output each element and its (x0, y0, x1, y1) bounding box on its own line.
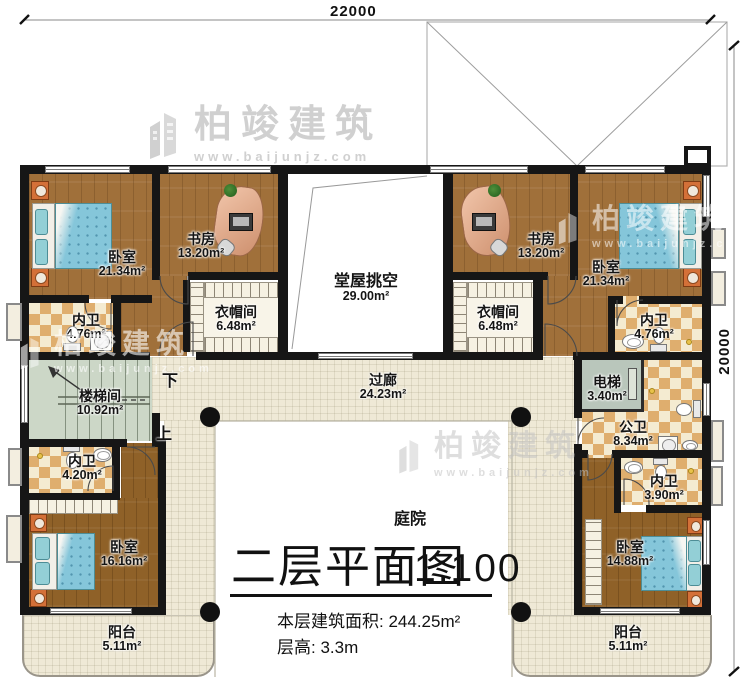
wall (570, 165, 578, 280)
nightstand (30, 514, 47, 532)
wall (196, 352, 278, 360)
wall (152, 272, 160, 280)
nightstand (30, 589, 47, 607)
pillow (683, 239, 696, 265)
wardrobe-hatch (204, 282, 279, 298)
bed-mattress (57, 533, 95, 590)
room-label-bedroom-top-left: 卧室21.34m² (99, 250, 146, 278)
pillow (35, 537, 50, 560)
dimension-top: 22000 (330, 3, 377, 20)
room-label-public-bath: 公卫8.34m² (613, 420, 653, 448)
wall (20, 439, 127, 447)
window (703, 175, 710, 217)
computer-monitor (229, 213, 253, 231)
window (585, 166, 665, 173)
window (703, 383, 710, 416)
room-label-bedroom-wing-left: 卧室16.16m² (101, 540, 148, 568)
wall (158, 439, 166, 615)
pillow (688, 540, 701, 562)
nightstand (31, 268, 49, 287)
wall (20, 295, 89, 303)
window (50, 608, 132, 614)
pillow (683, 209, 696, 235)
elevator-door (628, 368, 637, 400)
column (511, 602, 531, 622)
wall (615, 296, 623, 304)
wardrobe-hatch (467, 337, 534, 353)
wall (188, 272, 286, 280)
wall (20, 352, 150, 360)
window (318, 353, 413, 359)
nightstand (687, 591, 703, 608)
bay-window (8, 448, 22, 486)
wall (608, 296, 615, 352)
toilet-tank (693, 400, 701, 418)
wall (614, 458, 621, 512)
room-label-bath-top-right: 内卫4.76m² (634, 313, 674, 341)
floor-drain (37, 453, 43, 459)
wall (639, 296, 711, 304)
watermark: 柏竣建筑 www.baijunjz.com (140, 106, 382, 163)
wall (183, 280, 190, 352)
room-label-bath-wing-left: 内卫4.20m² (62, 454, 102, 482)
window (703, 520, 710, 565)
brand-logo-icon (392, 437, 424, 475)
toilet-tank (653, 458, 668, 465)
wardrobe-hatch (585, 519, 602, 605)
room-label-bath-wing-right: 内卫3.90m² (644, 474, 684, 502)
room-label-hall-void: 堂屋挑空29.00m² (334, 275, 398, 303)
floor-height-line: 层高: 3.3m (277, 638, 358, 658)
wall (574, 458, 582, 615)
plant (488, 184, 501, 197)
nightstand (31, 181, 49, 200)
wall (20, 493, 120, 500)
floor-drain (686, 339, 692, 345)
wardrobe-hatch (204, 337, 279, 353)
room-label-elevator: 电梯3.40m² (587, 375, 627, 403)
room-label-courtyard: 庭院 (394, 513, 426, 527)
wall (646, 505, 711, 513)
window (600, 608, 680, 614)
wardrobe-hatch (467, 282, 534, 298)
bay-window (711, 466, 723, 506)
plant (224, 184, 237, 197)
room-label-bedroom-wing-right: 卧室14.88m² (607, 540, 654, 568)
chimney (684, 146, 711, 167)
room-label-balcony-left: 阳台5.11m² (103, 625, 142, 653)
pillow (35, 209, 48, 235)
pillow (688, 564, 701, 586)
nightstand (687, 517, 703, 534)
wardrobe-hatch (28, 499, 118, 514)
bay-window (6, 515, 22, 563)
room-label-study-right: 书房13.20m² (518, 232, 565, 260)
room-label-corridor: 过廊24.23m² (360, 373, 407, 401)
bay-window (6, 303, 22, 341)
wall (614, 505, 621, 513)
stair-landing (29, 357, 60, 441)
floor-walkway-left (164, 420, 215, 615)
room-label-bedroom-top-right: 卧室21.34m² (583, 260, 630, 288)
bay-window (711, 271, 726, 306)
window (21, 365, 28, 423)
floor-strip-left (121, 443, 158, 505)
pillow (35, 239, 48, 265)
column (511, 407, 531, 427)
column (200, 407, 220, 427)
sink (624, 461, 643, 474)
wall (152, 165, 160, 280)
floor-hall-void (286, 172, 445, 354)
dimension-right: 20000 (716, 328, 733, 375)
room-label-cloak-right: 衣帽间6.48m² (477, 305, 519, 333)
floor-drain (688, 468, 694, 474)
window (168, 166, 271, 173)
floor-area-line: 本层建筑面积: 244.25m² (277, 612, 460, 632)
title-underline (230, 594, 492, 597)
stair-down-label: 下 (162, 367, 178, 391)
wall (453, 352, 543, 360)
window (430, 166, 528, 173)
wall (445, 272, 548, 280)
floor-plan-canvas: 卧室21.34m² 书房13.20m² 堂屋挑空29.00m² 书房13.20m… (0, 0, 750, 679)
toilet-bowl (676, 403, 692, 416)
wall (443, 165, 453, 360)
bay-window (711, 228, 726, 259)
stair-up-label: 上 (156, 420, 172, 444)
toilet-tank (650, 344, 667, 352)
room-label-cloak-left: 衣帽间6.48m² (215, 305, 257, 333)
wall (574, 450, 588, 458)
room-label-stairwell: 楼梯间10.92m² (77, 389, 124, 417)
wall (533, 280, 543, 352)
wall (573, 352, 711, 360)
wall (113, 300, 121, 352)
floor-passage-right (541, 276, 616, 356)
wall (574, 352, 582, 418)
floor-passage-left (121, 276, 187, 356)
nightstand (683, 181, 701, 200)
room-label-bath-top-left: 内卫4.76m² (66, 313, 106, 341)
column (200, 602, 220, 622)
pillow (35, 562, 50, 585)
brand-logo-icon (140, 109, 184, 161)
wardrobe-hatch (190, 282, 204, 352)
computer-monitor (472, 213, 496, 231)
wall (112, 445, 120, 499)
window (45, 166, 130, 173)
toilet-tank (63, 343, 81, 351)
room-label-study-left: 书房13.20m² (178, 232, 225, 260)
wall (612, 450, 711, 458)
bay-window (711, 420, 724, 462)
drawing-scale: 1:100 (414, 548, 522, 590)
wardrobe-hatch (453, 282, 467, 352)
wall (278, 165, 288, 360)
room-label-balcony-right: 阳台5.11m² (609, 625, 648, 653)
floor-strip-right (582, 458, 614, 514)
floor-drain (649, 388, 655, 394)
nightstand (683, 268, 701, 287)
